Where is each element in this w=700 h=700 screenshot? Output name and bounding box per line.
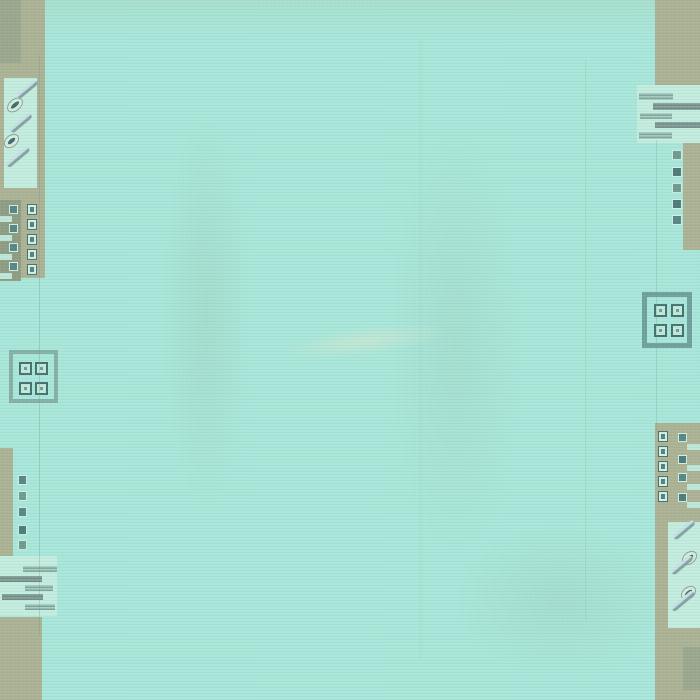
left-medallion [9,350,58,403]
dashed-bar [0,576,42,582]
teal-square [672,183,682,193]
field-shade-band-left [148,50,263,570]
light-bar [687,444,700,450]
dot-square-center [661,494,665,499]
medallion-cell-center [676,309,679,312]
dot-square [658,461,668,472]
dashed-bar [2,594,43,600]
medallion-cell-center [24,367,27,370]
left-bottom-corner-block [0,617,42,700]
dashed-bar [653,103,700,110]
teal-square [678,493,687,502]
teal-square [672,167,682,177]
medallion-cell [35,382,48,395]
dot-square-center [661,434,665,439]
dashed-bar [639,93,673,100]
dashed-bar [23,566,57,572]
seam-line-right [656,140,657,432]
rug-image [0,0,700,700]
dot-square-center [661,479,665,484]
teal-square [9,243,18,252]
teal-square [672,199,682,209]
teal-square [18,491,27,501]
dashed-bar [25,604,55,610]
light-bar [0,254,12,260]
medallion-cell [671,324,684,337]
seam-line-left [39,55,40,635]
dashed-bar [640,113,672,119]
photo-stage [0,0,700,700]
right-border-strip [683,143,700,250]
dot-square-center [30,222,34,227]
dot-square [27,264,37,275]
teal-square [18,475,27,485]
dot-square [658,431,668,442]
warp-crease-center [420,40,421,660]
teal-square [18,507,27,517]
dot-square [658,476,668,487]
light-bar [687,502,700,508]
teal-square [18,525,27,535]
dot-square-center [30,267,34,272]
dot-square [27,234,37,245]
light-bar [0,235,12,241]
dot-square-center [661,464,665,469]
medallion-cell-center [40,387,43,390]
field-top-tint [40,0,655,34]
dashed-bar [639,132,672,139]
dot-square [27,204,37,215]
eye-mark-center [10,100,20,109]
teal-square [9,224,18,233]
medallion-cell [19,362,32,375]
right-bottom-olive-rect [683,647,700,690]
dashed-bar [655,122,700,128]
teal-square [672,215,682,225]
eye-mark-center [7,137,16,146]
light-bar [0,273,12,279]
dot-square-center [30,237,34,242]
medallion-cell [671,304,684,317]
right-top-corner-block [655,0,700,86]
medallion-cell-center [24,387,27,390]
teal-square [9,205,18,214]
medallion-cell [19,382,32,395]
light-bar [687,484,700,490]
teal-square [678,473,687,482]
warp-crease-right [585,60,586,620]
teal-square [18,540,27,550]
light-bar [687,465,700,471]
right-medallion [642,292,692,348]
dot-square [27,249,37,260]
teal-square [672,150,682,160]
dot-square [658,446,668,457]
medallion-cell-center [659,309,662,312]
teal-square [9,262,18,271]
left-bottom-border-strip [0,448,13,560]
medallion-cell-center [40,367,43,370]
dot-square-center [30,252,34,257]
dot-square [658,491,668,502]
dot-square-center [30,207,34,212]
dot-square [27,219,37,230]
teal-square [678,455,687,464]
medallion-cell-center [659,329,662,332]
dot-square-center [661,449,665,454]
teal-square [678,433,687,442]
left-top-olive-rect [0,0,21,63]
medallion-cell [35,362,48,375]
light-bar [0,216,12,222]
medallion-cell-center [676,329,679,332]
